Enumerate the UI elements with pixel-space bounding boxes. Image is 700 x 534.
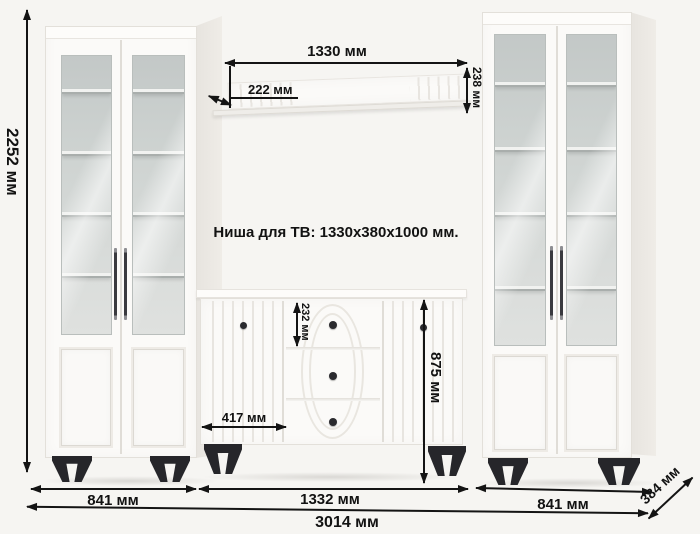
right-cabinet-side-panel <box>630 6 656 456</box>
dim-arrow-shelf-height <box>466 68 468 113</box>
glass-shelf-line <box>567 82 616 87</box>
glass-shelf-line <box>495 147 545 152</box>
right-cabinet-top <box>483 13 631 25</box>
right-cabinet-handle-left <box>550 246 553 320</box>
tv-niche-label: Ниша для ТВ: 1330x380x1000 мм. <box>206 224 466 241</box>
right-cabinet-glass-left <box>494 34 546 346</box>
dim-arrow-stand-door <box>202 426 286 428</box>
dim-arrow-total-height <box>26 10 28 472</box>
drawer-divider <box>286 347 380 350</box>
glass-shelf-line <box>133 89 184 94</box>
tv-stand-top <box>196 289 467 298</box>
dim-leader-shelf-depth <box>230 97 298 99</box>
left-cabinet-panel-right <box>131 347 186 448</box>
drawer-knob-3 <box>329 418 337 426</box>
glass-shelf-line <box>495 286 545 291</box>
tv-stand-door-right <box>382 301 461 442</box>
tv-stand-leg-left <box>204 444 242 474</box>
dim-label-shelf-depth: 222 мм <box>248 82 293 97</box>
dim-arrow-shelf-width <box>225 62 467 64</box>
dim-label-shelf-height: 238 мм <box>470 67 484 108</box>
dim-arrow-stand-height <box>423 300 425 483</box>
left-cabinet-top <box>46 27 196 39</box>
left-cabinet-handle-right <box>124 248 127 320</box>
dim-arrow-center-width <box>199 488 468 490</box>
dim-label-total-height: 2252 мм <box>2 128 22 196</box>
glass-shelf-line <box>62 89 111 94</box>
left-cabinet-panel-left <box>59 347 113 448</box>
wall-shelf-grooves-right <box>409 76 464 101</box>
glass-shelf-line <box>133 273 184 278</box>
glass-shelf-line <box>62 212 111 217</box>
dim-arrow-left-width <box>31 488 196 490</box>
dim-label-center-width: 1332 мм <box>280 491 380 508</box>
right-cabinet-glass-right <box>566 34 617 346</box>
glass-shelf-line <box>567 147 616 152</box>
right-cabinet-handle-right <box>560 246 563 320</box>
drawer-knob-2 <box>329 372 337 380</box>
drawer-knob-1 <box>329 321 337 329</box>
left-cabinet-handle-left <box>114 248 117 320</box>
right-cabinet-panel-right <box>564 354 619 452</box>
glass-shelf-line <box>133 151 184 156</box>
dim-label-total-width: 3014 мм <box>297 514 397 532</box>
right-cabinet-door-gap <box>556 26 558 454</box>
dim-arrow-top-drawer <box>296 303 298 346</box>
dim-label-shelf-width: 1330 мм <box>287 43 387 60</box>
furniture-dimension-diagram: Ниша для ТВ: 1330x380x1000 мм. 2252 мм 1… <box>0 0 700 534</box>
drawer-divider <box>286 398 380 401</box>
glass-shelf-line <box>495 212 545 217</box>
glass-shelf-line <box>62 273 111 278</box>
right-cabinet-panel-left <box>492 354 548 452</box>
tv-stand-door-left-knob <box>240 322 247 329</box>
glass-shelf-line <box>495 82 545 87</box>
glass-shelf-line <box>133 212 184 217</box>
left-cabinet-door-gap <box>120 40 122 454</box>
glass-shelf-line <box>567 286 616 291</box>
floor-shadow-right <box>478 478 663 488</box>
dim-label-stand-door: 417 мм <box>204 410 284 425</box>
dim-label-top-drawer: 232 мм <box>299 303 311 341</box>
left-cabinet-glass-left <box>61 55 112 335</box>
dim-label-stand-height: 875 мм <box>427 352 444 403</box>
tv-stand-leg-right <box>428 446 466 476</box>
left-cabinet-glass-right <box>132 55 185 335</box>
glass-shelf-line <box>62 151 111 156</box>
glass-shelf-line <box>567 212 616 217</box>
